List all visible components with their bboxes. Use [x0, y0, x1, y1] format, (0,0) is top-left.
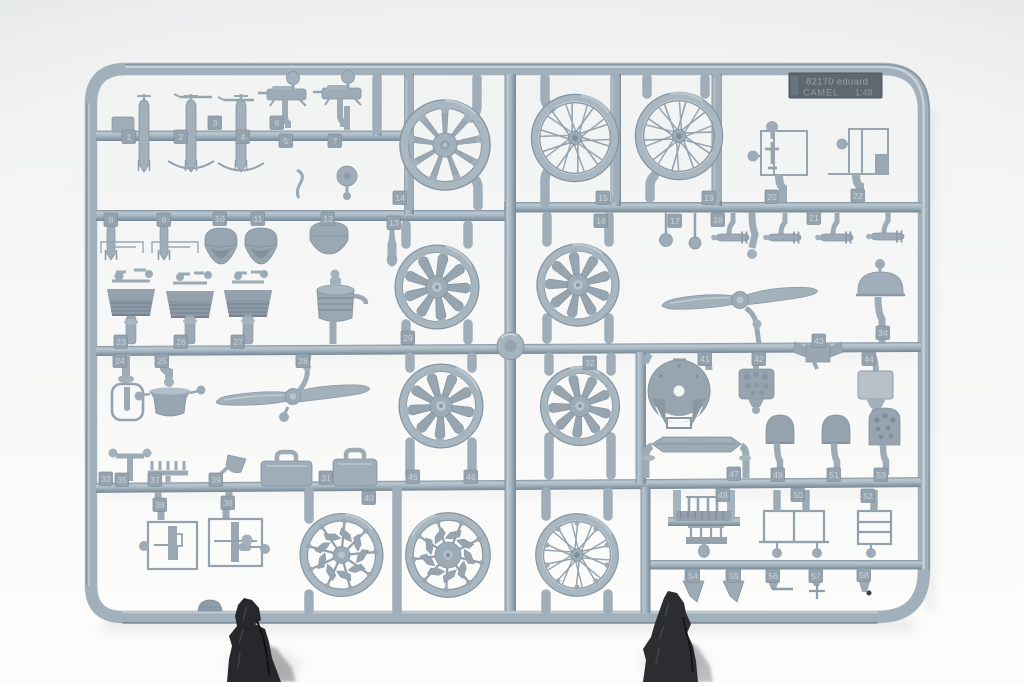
svg-text:5: 5	[284, 136, 289, 146]
svg-text:40: 40	[364, 493, 374, 503]
svg-text:16: 16	[596, 216, 606, 226]
svg-text:28: 28	[298, 356, 308, 366]
svg-text:45: 45	[408, 472, 418, 482]
svg-text:12: 12	[323, 214, 333, 224]
svg-text:29: 29	[403, 333, 413, 343]
svg-text:56: 56	[768, 571, 778, 581]
svg-text:26: 26	[176, 337, 186, 347]
svg-text:82170 eduard: 82170 eduard	[806, 77, 868, 88]
svg-text:54: 54	[688, 571, 698, 581]
svg-text:25: 25	[157, 356, 167, 366]
svg-text:52: 52	[863, 491, 873, 501]
svg-text:50: 50	[793, 490, 803, 500]
svg-text:33: 33	[101, 474, 111, 484]
svg-text:11: 11	[254, 214, 263, 224]
svg-text:41: 41	[700, 354, 710, 364]
svg-text:31: 31	[321, 473, 331, 483]
svg-text:36: 36	[223, 498, 233, 508]
svg-text:23: 23	[116, 337, 126, 347]
svg-text:47: 47	[729, 469, 739, 479]
svg-text:43: 43	[814, 336, 824, 346]
svg-text:35: 35	[117, 475, 127, 485]
svg-text:CAMEL: CAMEL	[803, 88, 839, 98]
svg-text:44: 44	[864, 354, 874, 364]
svg-text:18: 18	[713, 215, 723, 225]
svg-text:39: 39	[211, 475, 221, 485]
svg-text:55: 55	[729, 571, 739, 581]
svg-text:27: 27	[233, 337, 243, 347]
svg-text:20: 20	[767, 192, 777, 202]
svg-text:7: 7	[333, 136, 338, 146]
svg-text:21: 21	[809, 213, 819, 223]
svg-text:15: 15	[598, 193, 608, 203]
svg-text:22: 22	[853, 191, 863, 201]
svg-text:3: 3	[213, 118, 218, 128]
svg-text:57: 57	[811, 571, 821, 581]
svg-text:1:48: 1:48	[855, 88, 873, 98]
svg-text:2: 2	[179, 132, 184, 142]
svg-text:32: 32	[585, 358, 595, 368]
svg-text:49: 49	[773, 470, 783, 480]
svg-text:4: 4	[241, 132, 246, 142]
svg-text:48: 48	[718, 490, 728, 500]
svg-text:19: 19	[704, 193, 714, 203]
svg-text:24: 24	[115, 356, 125, 366]
svg-text:17: 17	[670, 216, 680, 226]
svg-text:1: 1	[127, 132, 132, 142]
svg-text:34: 34	[878, 328, 888, 338]
svg-text:8: 8	[109, 215, 114, 225]
svg-text:46: 46	[466, 472, 476, 482]
svg-text:37: 37	[150, 475, 160, 485]
svg-text:13: 13	[389, 218, 399, 228]
svg-text:42: 42	[754, 354, 764, 364]
svg-text:51: 51	[829, 470, 839, 480]
svg-text:58: 58	[859, 570, 869, 580]
svg-text:53: 53	[876, 470, 886, 480]
svg-text:38: 38	[155, 500, 165, 510]
svg-text:14: 14	[395, 193, 405, 203]
svg-text:10: 10	[215, 214, 225, 224]
svg-text:6: 6	[275, 118, 280, 128]
svg-text:9: 9	[162, 215, 167, 225]
